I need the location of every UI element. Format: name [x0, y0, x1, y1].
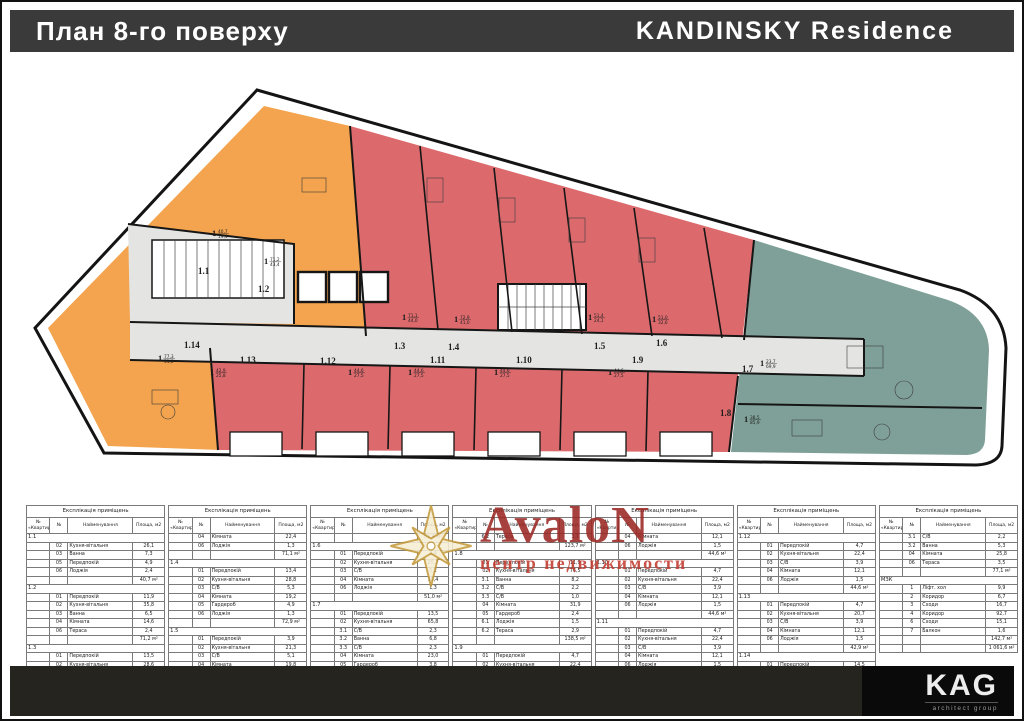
cell-name: Передпокій — [68, 653, 133, 662]
room-row: 3.2Ванна5,3 — [879, 542, 1017, 551]
explication-table-grid: Експлікація приміщень№ «Квартири»№Наймен… — [26, 505, 165, 679]
explication-table-grid: Експлікація приміщень№ «Квартири»№Наймен… — [737, 505, 876, 679]
cell-area: 1,0 — [559, 593, 591, 602]
unit-number: 1.3 — [394, 341, 406, 351]
cell-name: Коридор — [921, 593, 986, 602]
cell-num: 6.2 — [476, 534, 494, 543]
cell-area: 92,7 — [986, 610, 1018, 619]
cell-area: 1,5 — [559, 619, 591, 628]
table-header: № «Квартири»№НайменуванняПлоща, м2 — [737, 518, 875, 534]
room-row: 02Кухня-вітальня22,4 — [595, 636, 733, 645]
room-row: 01Передпокій13,5 — [27, 653, 165, 662]
room-row: 7Балкон1,6 — [879, 627, 1017, 636]
cell-apt — [879, 602, 902, 611]
cell-area: 26,1 — [133, 542, 165, 551]
cell-num: 03 — [761, 619, 779, 628]
room-row: 03С/В3,9 — [595, 644, 733, 653]
cell-num: 03 — [334, 568, 352, 577]
cell-area: 15,4 — [417, 576, 449, 585]
cell-name: Кухня-вітальня — [210, 576, 275, 585]
loggia-box — [488, 432, 540, 456]
cell-area: 3,9 — [275, 636, 307, 645]
explication-table-grid: Експлікація приміщень№ «Квартири»№Наймен… — [879, 505, 1018, 653]
cell-apt — [879, 559, 902, 568]
cell-name: Кімната — [636, 593, 701, 602]
cell-apt — [453, 576, 476, 585]
elevator-shaft — [298, 272, 326, 302]
room-row: 05Передпокій4,9 — [27, 559, 165, 568]
cell-apt — [311, 585, 334, 594]
total-area-cell: 71,1 м² — [275, 551, 307, 560]
unit-area-living: 41,0 — [460, 320, 470, 326]
cell-name: С/В — [779, 619, 844, 628]
room-row: 03Ванна6,5 — [27, 610, 165, 619]
cell-num: 03 — [761, 559, 779, 568]
cell-num: 01 — [334, 551, 352, 560]
cell-name: Передпокій — [68, 559, 133, 568]
cell-num: 04 — [903, 551, 921, 560]
cell-name: С/В — [352, 627, 417, 636]
apartment-id-cell: 1.2 — [27, 585, 165, 594]
table-header: № «Квартири»№НайменуванняПлоща, м2 — [879, 518, 1017, 534]
total-row: 44,6 м² — [595, 551, 733, 560]
cell-area: 35,8 — [133, 602, 165, 611]
title-bar: План 8-го поверху KANDINSKY Residence — [10, 10, 1014, 52]
room-row: 01Передпокій4,7 — [595, 568, 733, 577]
cell-apt — [737, 551, 760, 560]
apartment-id-cell: 1.10 — [595, 559, 733, 568]
cell-apt — [595, 568, 618, 577]
cell-apt — [453, 619, 476, 628]
room-row: 02Кухня-вітальня76,5 — [453, 568, 591, 577]
room-row: 06Лоджія2,4 — [27, 568, 165, 577]
col-apt: № «Квартири» — [737, 518, 760, 534]
cell-apt — [879, 619, 902, 628]
cell-num: 6.2 — [476, 627, 494, 636]
cell-name: Передпокій — [636, 627, 701, 636]
cell-area: 1,3 — [275, 610, 307, 619]
cell-num: 03 — [192, 585, 210, 594]
cell-apt — [595, 602, 618, 611]
room-row: 3.3С/В1,0 — [453, 593, 591, 602]
total-row: 51,4 м² — [311, 534, 449, 543]
unit-type-digit: 1 — [608, 367, 612, 377]
room-row: 01Передпокій13,4 — [169, 568, 307, 577]
cell-area: 12,1 — [701, 593, 733, 602]
room-row: 04Кімната14,6 — [27, 619, 165, 628]
cell-apt — [311, 576, 334, 585]
kag-wordmark: KAG — [925, 671, 998, 703]
cell-apt — [169, 568, 192, 577]
apartment-row: 1.13 — [737, 593, 875, 602]
cell-num: 06 — [761, 636, 779, 645]
cell-name: Кухня-вітальня — [779, 610, 844, 619]
table-header: № «Квартири»№НайменуванняПлоща, м2 — [311, 518, 449, 534]
cell-num: 05 — [50, 559, 68, 568]
total-area-cell: 77,1 м² — [986, 568, 1018, 577]
cell-name: С/В — [494, 585, 559, 594]
room-row: 3.2Ванна6,8 — [311, 636, 449, 645]
total-row: 142,7 м² — [879, 636, 1017, 645]
cell-name: Кухня-вітальня — [636, 636, 701, 645]
cell-apt — [737, 602, 760, 611]
col-name: Найменування — [210, 518, 275, 534]
apartment-row: 1.11 — [595, 619, 733, 628]
cell-area: 6,7 — [986, 593, 1018, 602]
apartment-row: 1.2 — [27, 585, 165, 594]
col-area: Площа, м2 — [133, 518, 165, 534]
cell-num: 02 — [761, 551, 779, 560]
total-row: 71,1 м² — [169, 551, 307, 560]
col-name: Найменування — [779, 518, 844, 534]
cell-apt — [737, 542, 760, 551]
cell-apt — [169, 602, 192, 611]
cell-area: 25,7 — [417, 559, 449, 568]
total-row: 40,7 м² — [27, 576, 165, 585]
cell-area: 25,8 — [986, 551, 1018, 560]
cell-area: 5,3 — [986, 542, 1018, 551]
cell-name: Балкон — [921, 627, 986, 636]
cell-num: 04 — [192, 593, 210, 602]
cell-name: Лоджія — [636, 602, 701, 611]
cell-name: Лоджія — [494, 619, 559, 628]
room-row: 04Кімната12,1 — [595, 534, 733, 543]
total-row: 44,6 м² — [737, 585, 875, 594]
apartment-id-cell: 1.9 — [453, 644, 591, 653]
cell-area: 20,7 — [844, 610, 876, 619]
cell-name: Ванна — [494, 576, 559, 585]
cell-apt — [595, 644, 618, 653]
cell-apt — [737, 576, 760, 585]
explication-table: Експлікація приміщень№ «Квартири»№Наймен… — [452, 505, 591, 679]
room-row: 03С/В3,9 — [595, 585, 733, 594]
cell-area: 2,2 — [986, 534, 1018, 543]
cell-name: Передпокій — [779, 542, 844, 551]
col-num: № — [619, 518, 637, 534]
cell-apt — [27, 602, 50, 611]
apartment-id-cell: МЗК — [879, 576, 1017, 585]
total-row: 51,0 м² — [311, 593, 449, 602]
cell-apt — [27, 653, 50, 662]
apartment-row: 1.1 — [27, 534, 165, 543]
explication-table: Експлікація приміщень№ «Квартири»№Наймен… — [595, 505, 734, 679]
cell-num: 3.3 — [476, 593, 494, 602]
cell-num: 04 — [619, 653, 637, 662]
cell-name: Тераса — [494, 627, 559, 636]
cell-num: 06 — [619, 542, 637, 551]
unit-number: 1.1 — [198, 266, 210, 276]
total-area-cell: 51,4 м² — [417, 534, 449, 543]
cell-area: 11,9 — [559, 559, 591, 568]
cell-apt — [595, 542, 618, 551]
col-name: Найменування — [68, 518, 133, 534]
cell-apt — [595, 593, 618, 602]
unit-type-digit: 1 — [158, 353, 162, 363]
total-area-cell: 44,6 м² — [701, 551, 733, 560]
cell-num: 04 — [619, 593, 637, 602]
cell-num: 3.1 — [903, 534, 921, 543]
apartment-id-cell: 1.3 — [27, 644, 165, 653]
room-row: 01Передпокій13,5 — [311, 610, 449, 619]
cell-apt — [169, 644, 192, 653]
cell-name: Передпокій — [494, 653, 559, 662]
elevator-shaft — [360, 272, 388, 302]
cell-num: 02 — [761, 610, 779, 619]
cell-name: Тераса — [921, 559, 986, 568]
cell-area: 6,5 — [133, 610, 165, 619]
cell-area: 22,4 — [701, 576, 733, 585]
cell-num: 04 — [761, 627, 779, 636]
col-area: Площа, м2 — [559, 518, 591, 534]
unit-type-digit: 1 — [744, 414, 748, 424]
apartment-id-cell: 1.8 — [453, 551, 591, 560]
explication-table-grid: Експлікація приміщень№ «Квартири»№Наймен… — [595, 505, 734, 679]
cell-apt — [595, 636, 618, 645]
cell-apt — [453, 627, 476, 636]
cell-area: 2,2 — [559, 585, 591, 594]
cell-num: 3.2 — [334, 636, 352, 645]
apartment-row: 1.9 — [453, 644, 591, 653]
cell-num: 03 — [192, 653, 210, 662]
apartment-row: 1.12 — [737, 534, 875, 543]
loggia-box — [316, 432, 368, 456]
unit-type-digit: 1 — [348, 367, 352, 377]
unit-area-living: 32,6 — [658, 320, 668, 326]
col-num: № — [476, 518, 494, 534]
col-num: № — [192, 518, 210, 534]
cell-apt — [311, 644, 334, 653]
apartment-id-cell: 1.6 — [311, 542, 449, 551]
room-row: 6.2Тераса3,1 — [453, 534, 591, 543]
cell-name: Кімната — [636, 653, 701, 662]
room-row: 3.1С/В2,2 — [879, 534, 1017, 543]
cell-area: 4,7 — [559, 653, 591, 662]
total-row: 42,9 м² — [737, 644, 875, 653]
col-name: Найменування — [494, 518, 559, 534]
cell-name: Кімната — [210, 593, 275, 602]
table-header: № «Квартири»№НайменуванняПлоща, м2 — [27, 518, 165, 534]
cell-num: 05 — [192, 602, 210, 611]
apartment-row: 1.4 — [169, 559, 307, 568]
cell-name: Тераса — [68, 627, 133, 636]
cell-apt — [169, 593, 192, 602]
apartment-row: 1.3 — [27, 644, 165, 653]
apartment-row: 1.7 — [311, 602, 449, 611]
cell-num: 02 — [334, 559, 352, 568]
cell-num: 02 — [192, 644, 210, 653]
room-row: 03С/В3,9 — [737, 619, 875, 628]
col-area: Площа, м2 — [844, 518, 876, 534]
cell-name: С/В — [494, 593, 559, 602]
cell-name: Лоджія — [779, 576, 844, 585]
table-title: Експлікація приміщень — [737, 506, 875, 518]
room-row: 02Кухня-вітальня65,8 — [311, 619, 449, 628]
cell-name: Кухня-вітальня — [68, 602, 133, 611]
unit-number: 1.5 — [594, 341, 606, 351]
total-row: 72,9 м² — [169, 619, 307, 628]
cell-num: 3.1 — [334, 627, 352, 636]
room-row: 04Кімната19,2 — [169, 593, 307, 602]
unit-type-digit: 1 — [588, 312, 592, 322]
cell-area: 8,2 — [559, 576, 591, 585]
cell-num: 02 — [476, 568, 494, 577]
unit-type-digit: 1 — [210, 367, 214, 377]
cell-name: Кімната — [636, 534, 701, 543]
table-title-cell: Експлікація приміщень — [879, 506, 1017, 518]
room-row: 06Лоджія1,5 — [737, 576, 875, 585]
loggia-box — [402, 432, 454, 456]
total-row: 77,1 м² — [879, 568, 1017, 577]
cell-name: Кухня-вітальня — [352, 619, 417, 628]
cell-name: Сходи — [921, 602, 986, 611]
apartment-id-cell: 1.11 — [595, 619, 733, 628]
unit-number: 1.14 — [184, 340, 200, 350]
total-area-cell: 44,6 м² — [701, 610, 733, 619]
cell-apt — [27, 593, 50, 602]
explication-table: Експлікація приміщень№ «Квартири»№Наймен… — [26, 505, 165, 679]
total-area-cell: 40,7 м² — [133, 576, 165, 585]
cell-num: 3.3 — [334, 644, 352, 653]
cell-area: 65,8 — [417, 619, 449, 628]
cell-apt — [27, 559, 50, 568]
cell-name: С/В — [352, 644, 417, 653]
cell-area: 31,9 — [559, 602, 591, 611]
cell-name: С/В — [210, 653, 275, 662]
explication-table: Експлікація приміщень№ «Квартири»№Наймен… — [879, 505, 1018, 653]
room-row: 04Кімната22,4 — [169, 534, 307, 543]
cell-name: Передпокій — [494, 559, 559, 568]
cell-apt — [595, 534, 618, 543]
unit-number: 1.12 — [320, 356, 336, 366]
room-row: 3.3С/В2,3 — [311, 644, 449, 653]
cell-num: 06 — [334, 585, 352, 594]
cell-num: 6.1 — [476, 619, 494, 628]
unit-number: 1.10 — [516, 355, 532, 365]
unit-area-living: 27,5 — [500, 373, 510, 379]
cell-name: Кімната — [494, 602, 559, 611]
room-row: 01Передпокій3,4 — [311, 551, 449, 560]
room-row: 01Передпокій4,7 — [737, 542, 875, 551]
explication-table-grid: Експлікація приміщень№ «Квартири»№Наймен… — [452, 505, 591, 679]
cell-area: 4,7 — [844, 542, 876, 551]
cell-name: Кімната — [352, 576, 417, 585]
room-row: 04Кімната12,1 — [737, 568, 875, 577]
room-row: 05Гардероб2,4 — [453, 610, 591, 619]
cell-area: 2,4 — [133, 627, 165, 636]
table-header: № «Квартири»№НайменуванняПлоща, м2 — [169, 518, 307, 534]
apartment-row: МЗК — [879, 576, 1017, 585]
apartment-row: 1.10 — [595, 559, 733, 568]
table-title: Експлікація приміщень — [27, 506, 165, 518]
cell-name: Лоджія — [210, 610, 275, 619]
unit-type-digit: 1 — [408, 367, 412, 377]
col-num: № — [761, 518, 779, 534]
cell-name: Передпокій — [210, 636, 275, 645]
cell-num: 02 — [50, 542, 68, 551]
table-header: № «Квартири»№НайменуванняПлоща, м2 — [453, 518, 591, 534]
apartment-row: 1.6 — [311, 542, 449, 551]
room-row: 2Коридор6,7 — [879, 593, 1017, 602]
unit-area-living: 43,4 — [270, 262, 280, 268]
cell-num: 04 — [334, 576, 352, 585]
room-row: 01Передпокій11,9 — [27, 593, 165, 602]
cell-area: 4,7 — [844, 602, 876, 611]
table-title-cell: Експлікація приміщень — [311, 506, 449, 518]
cell-name: Кухня-вітальня — [68, 542, 133, 551]
cell-area: 28,8 — [275, 576, 307, 585]
cell-num: 03 — [619, 585, 637, 594]
cell-apt — [595, 627, 618, 636]
unit-area-living: 51,8 — [164, 359, 174, 365]
unit-type-digit: 1 — [652, 314, 656, 324]
room-row: 03С/В5,2 — [311, 568, 449, 577]
drawing-sheet: План 8-го поверху KANDINSKY Residence — [0, 0, 1024, 721]
apartment-row: 1.8 — [453, 551, 591, 560]
cell-apt — [879, 627, 902, 636]
project-name: KANDINSKY Residence — [636, 17, 1014, 46]
room-row: 6.2Тераса2,9 — [453, 627, 591, 636]
cell-area: 22,4 — [701, 636, 733, 645]
cell-area: 12,1 — [701, 653, 733, 662]
table-title-cell: Експлікація приміщень — [737, 506, 875, 518]
cell-num: 02 — [50, 602, 68, 611]
apartment-id-cell: 1.14 — [737, 653, 875, 662]
cell-num: 1 — [903, 585, 921, 594]
total-row: 138,5 м² — [453, 636, 591, 645]
cell-apt — [169, 585, 192, 594]
unit-area-living: 24,1 — [594, 318, 604, 324]
cell-area: 9,9 — [986, 585, 1018, 594]
cell-apt — [595, 576, 618, 585]
room-row: 02Кухня-вітальня35,8 — [27, 602, 165, 611]
cell-apt — [27, 610, 50, 619]
unit-number: 1.11 — [430, 355, 446, 365]
col-num: № — [50, 518, 68, 534]
room-row: 01Передпокій4,7 — [595, 627, 733, 636]
cell-num: 02 — [619, 576, 637, 585]
cell-area: 15,1 — [986, 619, 1018, 628]
cell-name: Лоджія — [352, 585, 417, 594]
cell-apt — [169, 610, 192, 619]
cell-num: 03 — [50, 610, 68, 619]
cell-name: Ванна — [921, 542, 986, 551]
total-area-cell: 71,2 м² — [133, 636, 165, 645]
cell-apt — [879, 542, 902, 551]
room-row: 02Кухня-вітальня21,3 — [169, 644, 307, 653]
cell-num: 01 — [192, 636, 210, 645]
cell-num: 6 — [903, 619, 921, 628]
cell-apt — [879, 585, 902, 594]
room-row: 01Передпокій4,7 — [737, 602, 875, 611]
cell-num: 02 — [192, 576, 210, 585]
col-name: Найменування — [636, 518, 701, 534]
cell-name: Ванна — [68, 551, 133, 560]
cell-num: 3.2 — [476, 585, 494, 594]
cell-area: 1,3 — [417, 585, 449, 594]
unit-area-living: 85,9 — [750, 420, 760, 426]
cell-name: Лоджія — [68, 568, 133, 577]
cell-area: 4,9 — [133, 559, 165, 568]
cell-num: 04 — [192, 534, 210, 543]
cell-num: 01 — [761, 602, 779, 611]
cell-apt — [453, 593, 476, 602]
cell-apt — [27, 551, 50, 560]
apartment-id-cell: 1.7 — [311, 602, 449, 611]
cell-area: 4,7 — [701, 568, 733, 577]
cell-area: 3,9 — [844, 619, 876, 628]
cell-name: Лоджія — [636, 542, 701, 551]
cell-num: 2 — [903, 593, 921, 602]
